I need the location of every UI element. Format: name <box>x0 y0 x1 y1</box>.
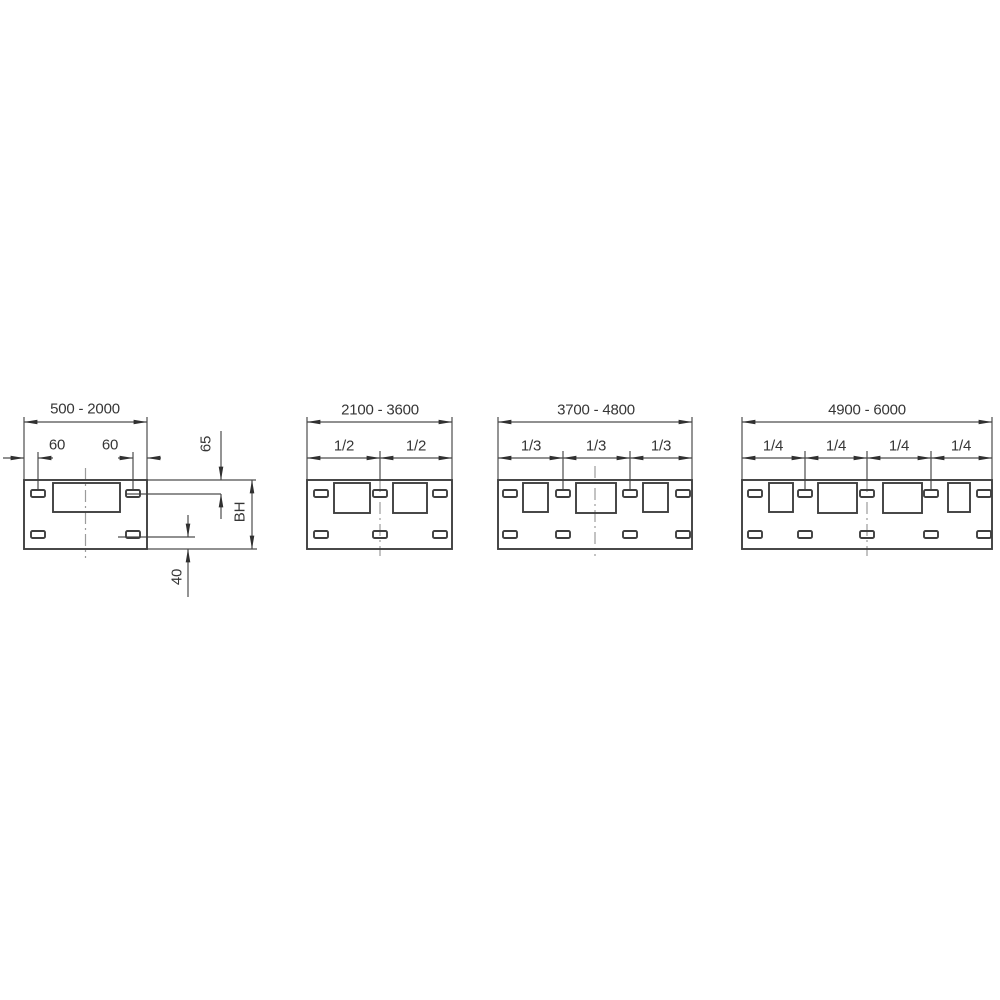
panel2-fraction-label: 1/2 <box>334 439 354 454</box>
panel2-slot <box>314 531 328 538</box>
panel4-cutout <box>769 483 793 512</box>
panel4-fraction-label: 1/4 <box>951 439 971 454</box>
panel4-cutout <box>818 483 857 513</box>
dimension-drawing <box>0 0 1000 1000</box>
panel4-slot <box>924 531 938 538</box>
panel1-cutout <box>53 483 120 512</box>
panel4-cutout <box>883 483 922 513</box>
panel4-fraction-label: 1/4 <box>763 439 783 454</box>
panel3-slot <box>503 531 517 538</box>
panel2-cutout <box>334 483 370 513</box>
panel4-slot <box>748 531 762 538</box>
panel1-slot <box>31 490 45 497</box>
technical-drawing-canvas: 500 - 2000 60 60 65 BH 40 2100 - 3600 1/… <box>0 0 1000 1000</box>
panel4-range-label: 4900 - 6000 <box>828 403 906 418</box>
panel4-slot <box>798 531 812 538</box>
panel3-fraction-label: 1/3 <box>586 439 606 454</box>
panel1-slot <box>31 531 45 538</box>
panel3-slot <box>556 490 570 497</box>
panel4-cutout <box>948 483 970 512</box>
panel2-slot <box>433 490 447 497</box>
panel3-slot <box>623 490 637 497</box>
panel4-slot <box>977 531 991 538</box>
panel4-slot <box>798 490 812 497</box>
panel2-slot <box>314 490 328 497</box>
panel3-slot <box>503 490 517 497</box>
panel3-cutout <box>523 483 548 512</box>
panel3-fraction-label: 1/3 <box>651 439 671 454</box>
panel3-range-label: 3700 - 4800 <box>557 403 635 418</box>
panel1-bottom-offset-label: 40 <box>170 569 185 585</box>
panel3-cutout <box>643 483 668 512</box>
panel3-cutout <box>576 483 616 513</box>
panel1-drawing <box>3 417 257 597</box>
panel3-slot <box>556 531 570 538</box>
panel1-offset-right-label: 60 <box>102 438 118 453</box>
panel2-extension-lines <box>307 417 452 480</box>
panel1-range-label: 500 - 2000 <box>50 402 120 417</box>
panel4-fraction-label: 1/4 <box>889 439 909 454</box>
panel1-body-height-label: BH <box>233 502 248 522</box>
panel2-drawing <box>307 417 452 556</box>
panel3-fraction-label: 1/3 <box>521 439 541 454</box>
panel3-slot <box>623 531 637 538</box>
panel4-fraction-label: 1/4 <box>826 439 846 454</box>
panel2-range-label: 2100 - 3600 <box>341 403 419 418</box>
panel2-slot <box>433 531 447 538</box>
panel4-slot <box>977 490 991 497</box>
panel1-top-offset-label: 65 <box>199 436 214 452</box>
panel4-slot <box>924 490 938 497</box>
panel2-fraction-label: 1/2 <box>406 439 426 454</box>
panel3-slot <box>676 531 690 538</box>
panel1-offset-left-label: 60 <box>49 438 65 453</box>
panel3-slot <box>676 490 690 497</box>
panel2-cutout <box>393 483 427 513</box>
panel4-slot <box>748 490 762 497</box>
